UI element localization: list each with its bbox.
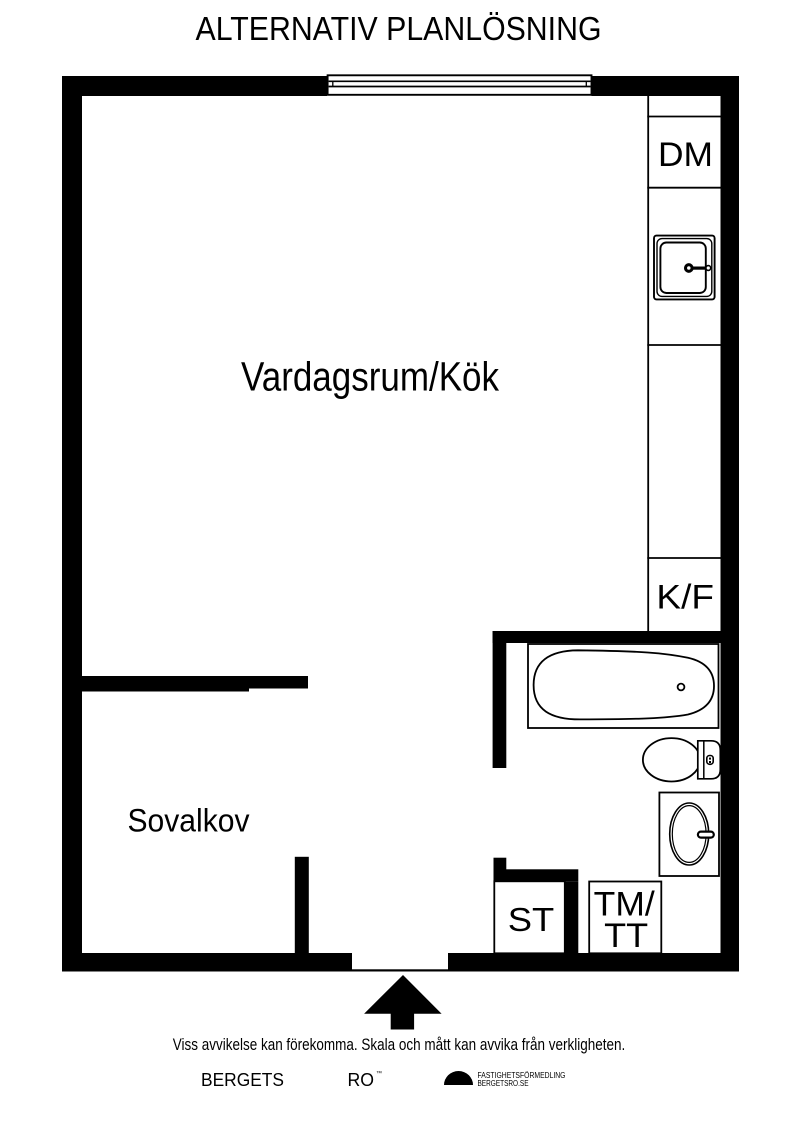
svg-text:BERGETSRO.SE: BERGETSRO.SE: [478, 1079, 529, 1088]
svg-text:Vardagsrum/Kök: Vardagsrum/Kök: [241, 354, 499, 400]
svg-text:RO: RO: [348, 1069, 375, 1090]
svg-text:™: ™: [376, 1070, 382, 1077]
svg-text:K/F: K/F: [656, 579, 714, 617]
svg-text:Sovalkov: Sovalkov: [128, 803, 250, 839]
svg-text:ALTERNATIV PLANLÖSNING: ALTERNATIV PLANLÖSNING: [196, 10, 602, 47]
svg-text:ST: ST: [508, 901, 555, 938]
svg-text:TT: TT: [604, 917, 648, 955]
svg-text:BERGETS: BERGETS: [201, 1069, 284, 1090]
svg-text:DM: DM: [658, 136, 713, 174]
svg-text:Viss avvikelse kan förekomma.: Viss avvikelse kan förekomma. Skala och …: [173, 1035, 626, 1054]
